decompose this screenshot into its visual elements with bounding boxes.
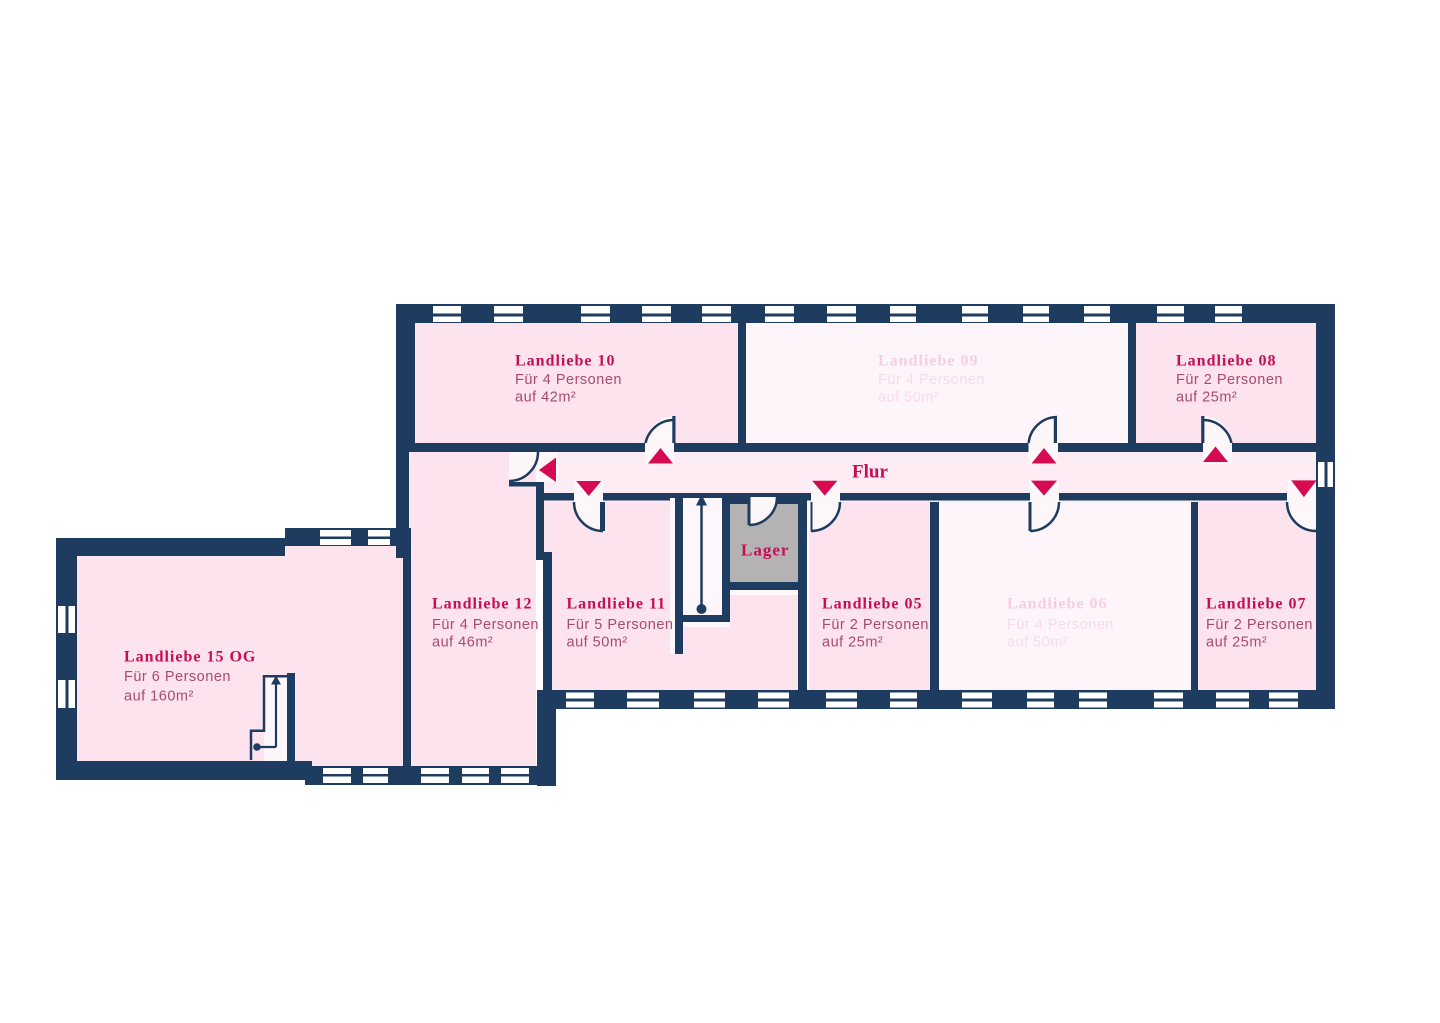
- svg-text:Für 5 Personen: Für 5 Personen: [567, 617, 674, 633]
- svg-text:Für 4 Personen: Für 4 Personen: [432, 617, 539, 633]
- svg-text:Landliebe 08: Landliebe 08: [1176, 353, 1276, 370]
- svg-text:Flur: Flur: [852, 462, 888, 483]
- svg-text:Landliebe 12: Landliebe 12: [432, 596, 532, 613]
- svg-text:Lager: Lager: [741, 541, 789, 560]
- svg-text:Für 4 Personen: Für 4 Personen: [515, 372, 622, 388]
- svg-text:Für 4 Personen: Für 4 Personen: [1007, 617, 1114, 633]
- svg-text:auf 46m²: auf 46m²: [432, 635, 493, 651]
- svg-text:auf 25m²: auf 25m²: [822, 635, 883, 651]
- svg-text:auf 160m²: auf 160m²: [124, 689, 194, 705]
- svg-text:auf 50m²: auf 50m²: [878, 390, 939, 406]
- svg-text:Für 6 Personen: Für 6 Personen: [124, 669, 231, 685]
- svg-text:Für 4 Personen: Für 4 Personen: [878, 372, 985, 388]
- svg-text:Für 2 Personen: Für 2 Personen: [822, 617, 929, 633]
- svg-text:Landliebe 06: Landliebe 06: [1007, 596, 1107, 613]
- svg-text:auf 25m²: auf 25m²: [1206, 635, 1267, 651]
- svg-text:auf 42m²: auf 42m²: [515, 390, 576, 406]
- svg-text:auf 50m²: auf 50m²: [567, 635, 628, 651]
- svg-text:Landliebe 15 OG: Landliebe 15 OG: [124, 649, 256, 666]
- svg-text:Landliebe 07: Landliebe 07: [1206, 596, 1306, 613]
- svg-text:Für 2 Personen: Für 2 Personen: [1206, 617, 1313, 633]
- svg-text:Für 2 Personen: Für 2 Personen: [1176, 372, 1283, 388]
- svg-text:Landliebe 11: Landliebe 11: [567, 596, 667, 613]
- svg-text:Landliebe 10: Landliebe 10: [515, 353, 615, 370]
- svg-text:auf 50m²: auf 50m²: [1007, 635, 1068, 651]
- svg-text:Landliebe 09: Landliebe 09: [878, 353, 978, 370]
- svg-text:auf 25m²: auf 25m²: [1176, 390, 1237, 406]
- svg-text:Landliebe 05: Landliebe 05: [822, 596, 922, 613]
